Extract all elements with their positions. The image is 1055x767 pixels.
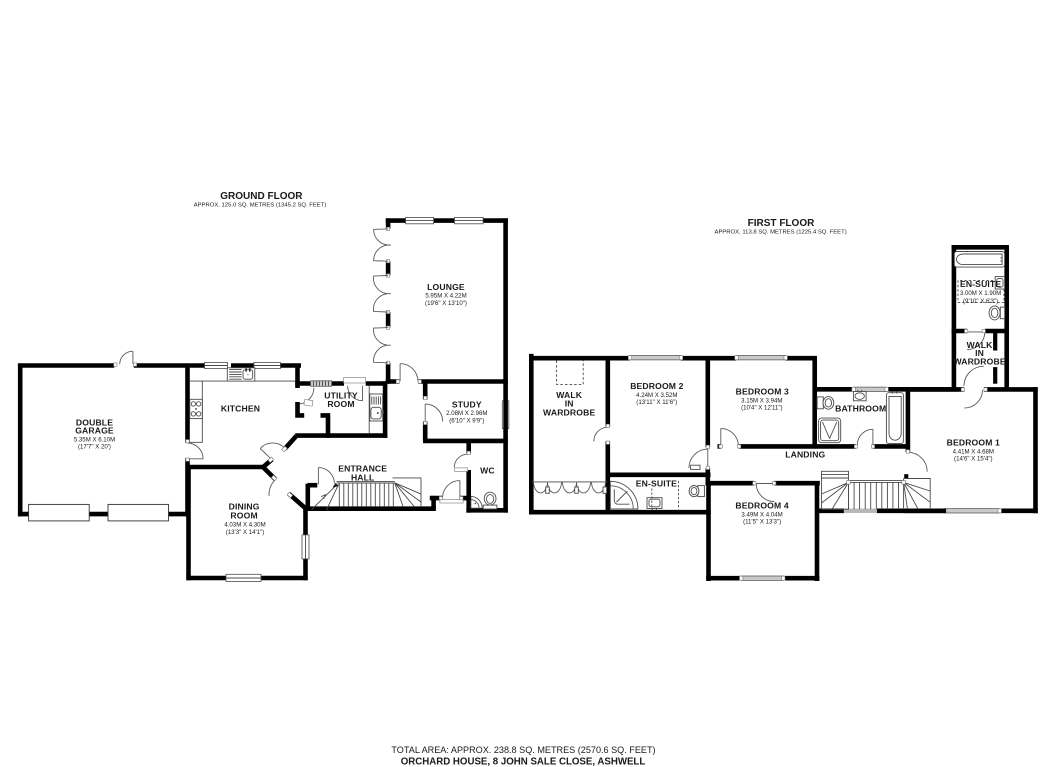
svg-text:LOUNGE: LOUNGE — [427, 282, 465, 292]
svg-text:WC: WC — [480, 466, 495, 476]
svg-text:(10'4" X 12'11"): (10'4" X 12'11") — [741, 405, 782, 412]
svg-text:4.41M X 4.68M: 4.41M X 4.68M — [953, 448, 994, 455]
svg-text:ROOM: ROOM — [327, 399, 354, 409]
svg-text:WARDROBE: WARDROBE — [953, 357, 1005, 367]
svg-text:(11'5" X 13'3"): (11'5" X 13'3") — [743, 519, 781, 526]
svg-text:ORCHARD HOUSE, 8 JOHN SALE CLO: ORCHARD HOUSE, 8 JOHN SALE CLOSE, ASHWEL… — [401, 757, 646, 767]
svg-text:(17'7" X 20'): (17'7" X 20') — [78, 443, 111, 450]
svg-text:BEDROOM 4: BEDROOM 4 — [735, 500, 788, 510]
svg-text:LANDING: LANDING — [785, 450, 825, 460]
svg-text:3.00M X 1.90M: 3.00M X 1.90M — [960, 290, 1001, 297]
svg-text:BEDROOM 1: BEDROOM 1 — [947, 438, 1000, 448]
svg-text:KITCHEN: KITCHEN — [221, 403, 260, 413]
svg-text:ROOM: ROOM — [230, 510, 257, 520]
svg-text:STUDY: STUDY — [452, 399, 482, 409]
svg-text:2.08M X 2.96M: 2.08M X 2.96M — [446, 410, 487, 417]
svg-text:(13'3" X 14'1"): (13'3" X 14'1") — [226, 529, 265, 536]
svg-text:3.15M X 3.94M: 3.15M X 3.94M — [741, 397, 782, 404]
svg-text:WARDROBE: WARDROBE — [543, 407, 595, 417]
svg-text:APPROX. 113.8 SQ. METRES (1225: APPROX. 113.8 SQ. METRES (1225.4 SQ. FEE… — [715, 230, 847, 236]
svg-text:FIRST FLOOR: FIRST FLOOR — [748, 218, 815, 229]
svg-text:HALL: HALL — [351, 472, 375, 482]
svg-text:GARAGE: GARAGE — [75, 426, 114, 436]
svg-text:EN-SUITE: EN-SUITE — [636, 478, 677, 488]
svg-text:5.35M X 6.10M: 5.35M X 6.10M — [74, 436, 115, 443]
svg-text:GROUND FLOOR: GROUND FLOOR — [220, 191, 303, 202]
svg-text:(19'6" X 13'10"): (19'6" X 13'10") — [425, 300, 467, 307]
svg-text:EN-SUITE: EN-SUITE — [960, 279, 1001, 289]
svg-text:3.49M X 4.04M: 3.49M X 4.04M — [741, 511, 782, 518]
svg-text:BEDROOM 2: BEDROOM 2 — [630, 381, 683, 391]
svg-text:(13'11" X 11'6"): (13'11" X 11'6") — [636, 399, 677, 406]
svg-text:APPROX. 125.0 SQ. METRES (1345: APPROX. 125.0 SQ. METRES (1345.2 SQ. FEE… — [194, 203, 327, 209]
svg-text:BEDROOM 3: BEDROOM 3 — [736, 386, 789, 396]
svg-text:4.24M X 3.52M: 4.24M X 3.52M — [636, 392, 677, 399]
svg-text:TOTAL AREA: APPROX. 238.8 SQ.: TOTAL AREA: APPROX. 238.8 SQ. METRES (25… — [391, 745, 655, 755]
svg-text:(6'10" X 9'9"): (6'10" X 9'9") — [449, 418, 484, 425]
svg-text:(9'10" X 6'3"): (9'10" X 6'3") — [963, 298, 998, 305]
svg-text:4.03M X 4.30M: 4.03M X 4.30M — [224, 521, 265, 528]
svg-text:5.95M X 4.22M: 5.95M X 4.22M — [425, 293, 466, 300]
svg-text:(14'6" X 15'4"): (14'6" X 15'4") — [954, 456, 993, 463]
svg-text:BATHROOM: BATHROOM — [835, 403, 886, 413]
